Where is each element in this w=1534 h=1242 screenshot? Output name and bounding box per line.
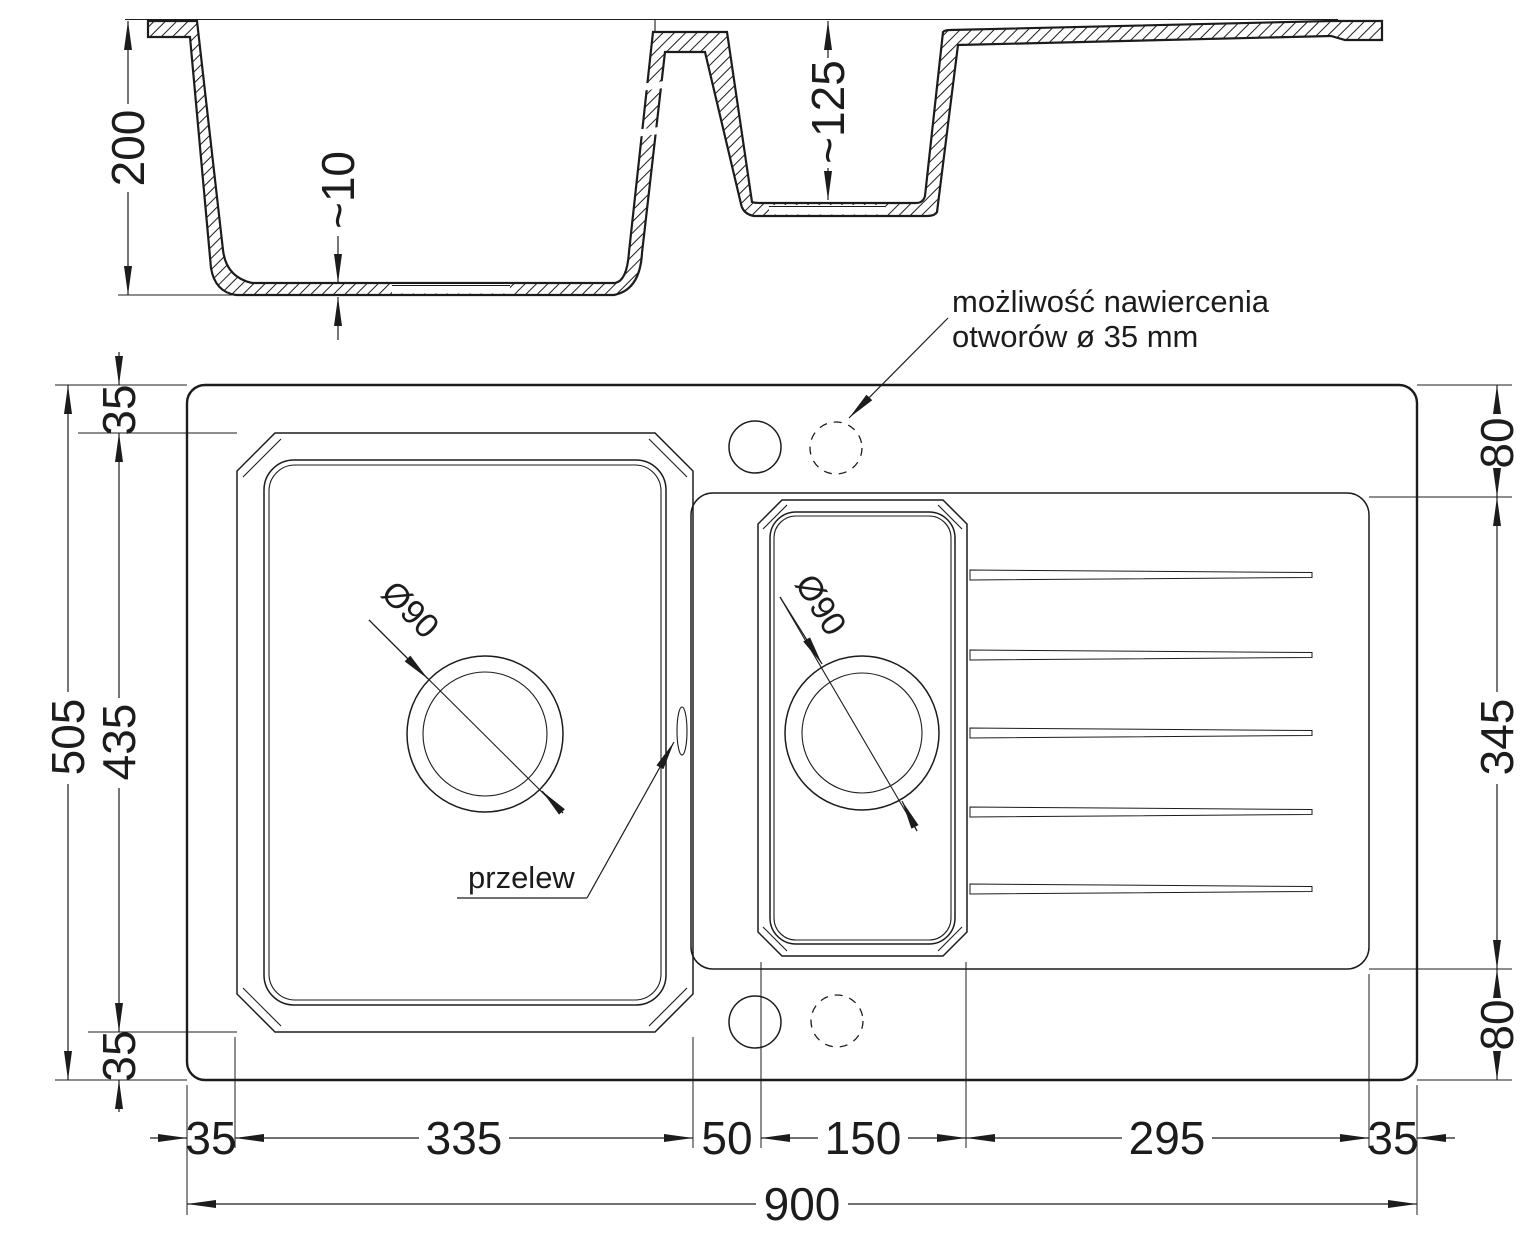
small-bowl-floor-recess <box>769 205 885 215</box>
main-bowl-inner-rim-outer <box>264 460 666 1005</box>
main-bowl-facet-br <box>649 988 687 1026</box>
small-bowl: Ø90 <box>758 500 967 956</box>
drill-note: możliwość nawiercenia otworów ø 35 mm <box>849 284 1270 418</box>
dim-bottom-chain: 35 335 50 150 295 35 <box>150 1112 1455 1164</box>
groove-5 <box>970 884 1312 894</box>
small-bowl-facet-br <box>938 927 962 951</box>
main-bowl-facet-bl <box>243 988 281 1026</box>
extension-lines <box>55 385 1512 1215</box>
dim-right-chain: 80 345 80 <box>1471 385 1523 1080</box>
dim-left-chain: 35 435 35 <box>93 352 145 1112</box>
dim-right-bottom-label: 80 <box>1471 999 1523 1050</box>
dim-depth-small: ~125 <box>802 21 854 200</box>
faucet-hole-bottom <box>729 996 781 1048</box>
small-bowl-outer-rim <box>758 500 967 956</box>
faucet-holes <box>729 421 863 1048</box>
recess-region-outline <box>691 493 1369 969</box>
small-bowl-facet-tr <box>938 505 962 529</box>
dim-bottom-4: 295 <box>1129 1112 1206 1164</box>
main-bowl-facet-tl <box>243 439 281 477</box>
optional-hole-bottom <box>811 995 863 1047</box>
dim-depth-main: 200 <box>102 21 154 295</box>
dim-right-middle-label: 345 <box>1471 699 1523 776</box>
small-bowl-facet-tl <box>763 505 787 529</box>
dim-floor-thickness-label: ~10 <box>312 151 364 229</box>
main-drain-outer <box>407 656 563 812</box>
optional-hole-top <box>810 422 862 474</box>
main-bowl-floor-recess <box>392 284 510 294</box>
dim-total-width-label: 900 <box>764 1178 841 1230</box>
drill-note-line1: możliwość nawiercenia <box>952 284 1270 319</box>
dim-bottom-0: 35 <box>185 1112 236 1164</box>
small-drain-outer <box>785 656 939 810</box>
dim-floor-thickness: ~10 <box>312 151 364 340</box>
dim-depth-small-label: ~125 <box>802 60 854 164</box>
dim-right-top-label: 80 <box>1471 417 1523 468</box>
dim-left-top-label: 35 <box>93 384 145 435</box>
plan-view: Ø90 przelew Ø90 <box>42 352 1523 1230</box>
faucet-hole-top <box>729 421 781 473</box>
groove-1 <box>970 570 1312 580</box>
groove-4 <box>970 807 1312 817</box>
dim-left-bottom-label: 35 <box>93 1030 145 1081</box>
dim-main-drain: Ø90 <box>369 574 563 813</box>
main-bowl-inner-rim-inner <box>269 465 661 1000</box>
dim-total-height-label: 505 <box>42 699 94 776</box>
drill-note-line2: otworów ø 35 mm <box>952 319 1198 354</box>
dim-total-height: 505 <box>42 385 94 1080</box>
groove-2 <box>970 650 1312 660</box>
dim-bottom-5: 35 <box>1367 1112 1418 1164</box>
dim-total-width: 900 <box>187 1178 1417 1230</box>
dim-bottom-3: 150 <box>825 1112 902 1164</box>
small-bowl-facet-bl <box>763 927 787 951</box>
small-drain-inner <box>802 673 922 793</box>
main-bowl: Ø90 <box>237 433 693 1032</box>
dim-bottom-2: 50 <box>701 1112 752 1164</box>
drainer-grooves <box>970 570 1312 894</box>
groove-3 <box>970 728 1312 738</box>
sink-technical-drawing: 200 ~10 ~125 możliwość nawiercenia otwor… <box>0 0 1534 1242</box>
dim-left-bowl-label: 435 <box>93 704 145 781</box>
overflow-slot <box>677 707 687 755</box>
dim-small-drain-label: Ø90 <box>787 568 853 643</box>
main-bowl-outer-rim <box>237 433 693 1032</box>
dim-depth-main-label: 200 <box>102 110 154 187</box>
drill-note-leader <box>849 318 948 418</box>
small-bowl-inner-rim-outer <box>770 512 955 944</box>
main-drain-inner <box>423 672 547 796</box>
overflow-label: przelew <box>468 860 575 895</box>
dim-bottom-1: 335 <box>426 1112 503 1164</box>
main-bowl-facet-tr <box>649 439 687 477</box>
overflow-callout: przelew <box>457 742 674 898</box>
